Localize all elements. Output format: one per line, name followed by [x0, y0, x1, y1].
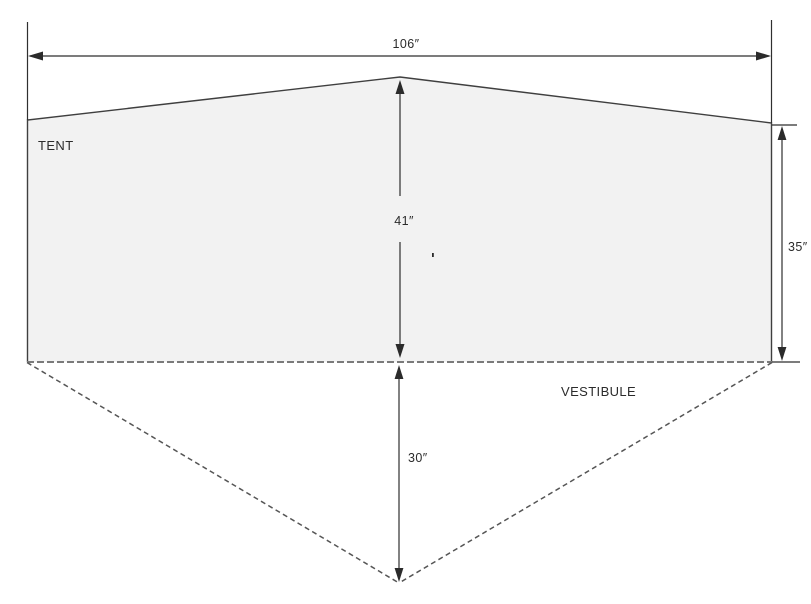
arrowhead-right-icon: [756, 52, 771, 61]
tent-label: TENT: [38, 138, 74, 153]
arrowhead-up-icon: [778, 126, 787, 140]
diagram-canvas: 106″ 41″ 35″ 30″ TENT VESTIBULE: [0, 0, 811, 604]
width-dimension-label: 106″: [393, 37, 420, 51]
side-height-dimension-label: 35″: [788, 240, 808, 254]
peak-height-dimension-label: 41″: [394, 214, 414, 228]
arrowhead-left-icon: [28, 52, 43, 61]
arrowhead-up-icon: [395, 365, 404, 379]
tent-dimension-diagram: 106″ 41″ 35″ 30″ TENT VESTIBULE: [0, 0, 811, 604]
vestibule-depth-dimension-label: 30″: [408, 451, 428, 465]
vestibule-label: VESTIBULE: [561, 384, 636, 399]
arrowhead-down-icon: [778, 347, 787, 361]
stray-dot-mark: [432, 253, 434, 257]
arrowhead-down-icon: [395, 568, 404, 582]
vestibule-left-dashed-edge: [27, 363, 399, 584]
